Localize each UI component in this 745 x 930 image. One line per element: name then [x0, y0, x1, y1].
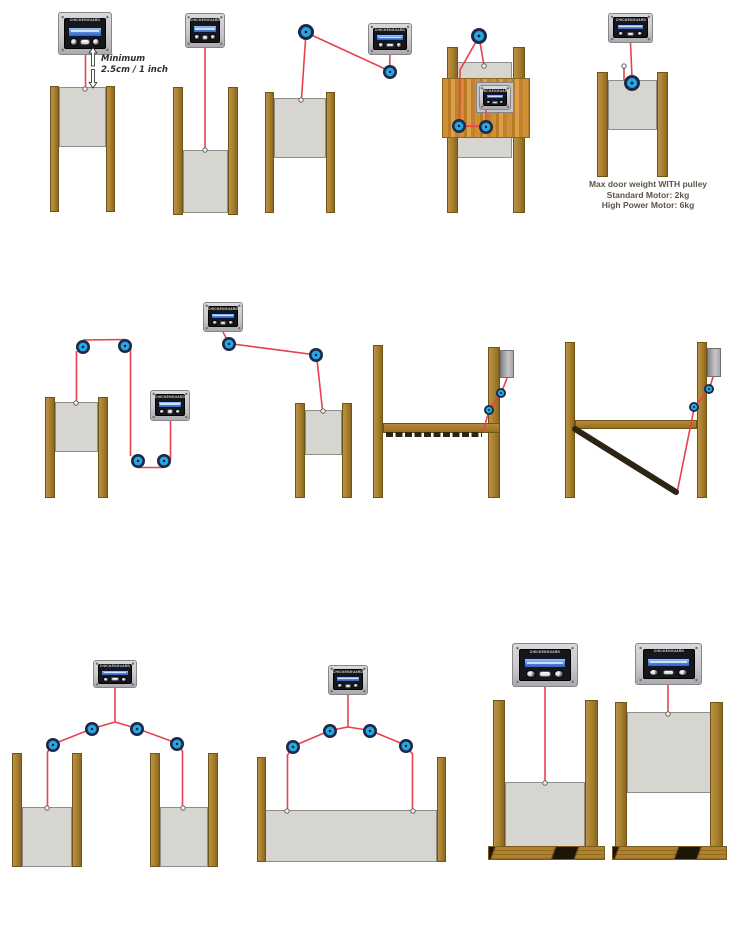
- device-face: CHICKENGUARD: [483, 89, 507, 106]
- device-face: CHICKENGUARD: [333, 669, 363, 690]
- left-knob-button: [649, 669, 659, 677]
- right-knob-button: [637, 31, 644, 36]
- d5-door-panel: [608, 80, 657, 130]
- center-button: [111, 677, 118, 681]
- d6-pulley-c-icon: [131, 454, 145, 468]
- d9-angled-door: [575, 429, 676, 492]
- d11-pulley-b-icon: [286, 740, 300, 754]
- d6-pulley-b-icon: [118, 339, 132, 353]
- device-buttons: [211, 320, 236, 326]
- right-knob-button: [678, 669, 688, 677]
- device-face: CHICKENGUARD: [208, 306, 238, 327]
- d6-left-post: [45, 397, 55, 498]
- d10-post-4: [208, 753, 218, 867]
- device-buttons: [336, 683, 361, 689]
- right-knob-button: [228, 320, 234, 325]
- d11-pulley-a-icon: [323, 724, 337, 738]
- left-knob-button: [194, 34, 200, 40]
- lcd-display: [193, 25, 217, 33]
- d2-right-post: [228, 87, 238, 215]
- d3-door-opener-unit: CHICKENGUARD: [368, 23, 412, 55]
- center-button: [386, 43, 393, 47]
- center-button: [167, 409, 174, 413]
- lcd-display: [617, 24, 645, 30]
- d10-right-door-panel: [160, 807, 208, 867]
- d1-right-post: [106, 86, 115, 212]
- d2-door-panel: [183, 150, 228, 213]
- d10-post-3: [150, 753, 160, 867]
- device-buttons: [485, 100, 504, 105]
- left-knob-button: [486, 100, 490, 104]
- brand-label: CHICKENGUARD: [333, 671, 363, 674]
- center-button: [80, 39, 89, 45]
- d13-right-post: [710, 702, 723, 850]
- d10-door-opener-unit: CHICKENGUARD: [93, 660, 137, 688]
- d11-wide-door-panel: [265, 810, 437, 862]
- d6-pulley-d-icon: [157, 454, 171, 468]
- d13-door-panel: [627, 712, 712, 793]
- d8-door-opener-unit-side: [500, 350, 514, 378]
- lcd-display: [336, 676, 360, 682]
- center-button: [220, 321, 227, 325]
- center-button: [345, 684, 352, 688]
- d9-cord: [677, 377, 713, 493]
- center-button: [539, 671, 551, 677]
- d6-door-opener-unit: CHICKENGUARD: [150, 390, 190, 421]
- left-knob-button: [378, 42, 384, 48]
- d10-pulley-d-icon: [170, 737, 184, 751]
- lcd-display: [101, 670, 128, 676]
- d2-left-post: [173, 87, 183, 215]
- d7-pulley-a-icon: [222, 337, 236, 351]
- max-door-weight-note: Max door weight WITH pulley Standard Mot…: [558, 179, 738, 211]
- d3-left-post: [265, 92, 274, 213]
- d4-top-pulley-icon: [471, 28, 487, 44]
- d11-left-post: [257, 757, 266, 862]
- lcd-display: [647, 658, 690, 668]
- d9-left-post: [565, 342, 575, 498]
- d12-right-post: [585, 700, 598, 850]
- device-face: CHICKENGUARD: [64, 18, 106, 49]
- d7-door-panel: [305, 410, 342, 455]
- center-button: [202, 35, 209, 40]
- d7-door-opener-unit: CHICKENGUARD: [203, 302, 243, 332]
- right-knob-button: [396, 42, 402, 48]
- d11-cord: [288, 695, 413, 810]
- lcd-display: [68, 27, 102, 37]
- device-buttons: [101, 676, 129, 682]
- d5-left-post: [597, 72, 608, 177]
- d6-door-panel: [55, 402, 98, 452]
- d7-left-post: [295, 403, 305, 498]
- d12-base-sill: [488, 846, 605, 860]
- brand-label: CHICKENGUARD: [100, 665, 130, 668]
- left-knob-button: [212, 320, 218, 325]
- d5-right-post: [657, 72, 668, 177]
- d9-top-rail: [575, 420, 697, 429]
- left-knob-button: [159, 409, 165, 414]
- right-knob-button: [92, 38, 100, 46]
- center-button: [627, 32, 635, 36]
- left-knob-button: [103, 677, 109, 682]
- lcd-display: [486, 94, 505, 99]
- d8-top-rail: [383, 423, 500, 433]
- d6-pulley-a-icon: [76, 340, 90, 354]
- d9-door-opener-unit-side: [707, 348, 721, 377]
- left-knob-button: [526, 670, 536, 678]
- minimum-clearance-line2: 2.5cm / 1 inch: [101, 65, 168, 76]
- d10-post-2: [72, 753, 82, 867]
- d11-right-post: [437, 757, 446, 862]
- installation-diagram-sheet: CHICKENGUARD CHICKENGUARD CHICKENGUARD: [0, 0, 745, 930]
- d10-pulley-b-icon: [46, 738, 60, 752]
- center-button: [663, 670, 675, 676]
- d8-left-post: [373, 345, 383, 498]
- weight-note-line3: High Power Motor: 6kg: [558, 200, 738, 211]
- brand-label: CHICKENGUARD: [155, 396, 185, 399]
- right-knob-button: [353, 683, 359, 688]
- device-face: CHICKENGUARD: [643, 649, 695, 679]
- minimum-clearance-note: Minimum 2.5cm / 1 inch: [101, 54, 168, 77]
- brand-label: CHICKENGUARD: [480, 90, 510, 93]
- left-knob-button: [70, 38, 78, 46]
- device-face: CHICKENGUARD: [373, 28, 407, 51]
- d3-lower-pulley-icon: [383, 65, 397, 79]
- device-face: CHICKENGUARD: [190, 18, 220, 43]
- brand-label: CHICKENGUARD: [70, 19, 100, 22]
- d12-left-post: [493, 700, 505, 850]
- center-button: [492, 101, 497, 104]
- d3-door-panel: [274, 98, 326, 158]
- d10-pulley-c-icon: [130, 722, 144, 736]
- d2-door-opener-unit: CHICKENGUARD: [185, 13, 225, 48]
- left-knob-button: [337, 683, 343, 688]
- d7-right-post: [342, 403, 352, 498]
- lcd-display: [376, 34, 403, 41]
- d5-door-opener-unit: CHICKENGUARD: [608, 13, 653, 43]
- d11-door-opener-unit: CHICKENGUARD: [328, 665, 368, 695]
- lcd-display: [211, 313, 235, 319]
- d12-door-opener-unit: CHICKENGUARD: [512, 643, 578, 687]
- right-knob-button: [121, 677, 127, 682]
- device-buttons: [376, 42, 404, 49]
- device-face: CHICKENGUARD: [613, 17, 647, 38]
- d10-left-door-panel: [22, 807, 72, 867]
- brand-label: CHICKENGUARD: [530, 651, 560, 654]
- device-buttons: [523, 669, 566, 679]
- right-knob-button: [554, 670, 564, 678]
- weight-note-line1: Max door weight WITH pulley: [558, 179, 738, 190]
- right-knob-button: [210, 34, 216, 40]
- d7-pulley-b-icon: [309, 348, 323, 362]
- left-knob-button: [618, 31, 625, 36]
- right-knob-button: [175, 409, 181, 414]
- right-knob-button: [499, 100, 503, 104]
- lcd-display: [524, 658, 566, 668]
- d13-left-post: [615, 702, 627, 850]
- d10-post-1: [12, 753, 22, 867]
- device-face: CHICKENGUARD: [98, 664, 132, 684]
- d1-door-opener-unit: CHICKENGUARD: [58, 12, 112, 55]
- d12-door-panel: [505, 782, 585, 847]
- weight-note-line2: Standard Motor: 2kg: [558, 190, 738, 201]
- down-arrow-icon: [89, 70, 97, 89]
- d13-base-sill: [612, 846, 727, 860]
- device-face: CHICKENGUARD: [519, 649, 570, 681]
- lcd-display: [158, 401, 182, 408]
- d3-right-post: [326, 92, 335, 213]
- brand-label: CHICKENGUARD: [615, 19, 645, 22]
- d5-attach-point: [622, 64, 626, 68]
- d10-cord: [48, 688, 183, 807]
- device-buttons: [68, 37, 103, 47]
- device-buttons: [193, 34, 218, 42]
- d13-door-opener-unit: CHICKENGUARD: [635, 643, 702, 685]
- d11-pulley-d-icon: [399, 739, 413, 753]
- d11-pulley-c-icon: [363, 724, 377, 738]
- brand-label: CHICKENGUARD: [190, 19, 220, 22]
- d6-right-post: [98, 397, 108, 498]
- d1-left-post: [50, 86, 59, 212]
- brand-label: CHICKENGUARD: [375, 29, 405, 32]
- d1-door-panel: [59, 87, 106, 147]
- brand-label: CHICKENGUARD: [208, 308, 238, 311]
- device-buttons: [616, 31, 645, 37]
- d9-right-post: [697, 342, 707, 498]
- d7-cord: [223, 332, 323, 410]
- brand-label: CHICKENGUARD: [653, 650, 683, 653]
- minimum-clearance-line1: Minimum: [101, 54, 168, 65]
- d3-top-pulley-icon: [298, 24, 314, 40]
- device-buttons: [647, 668, 691, 678]
- device-face: CHICKENGUARD: [155, 394, 185, 416]
- d4-door-opener-unit: CHICKENGUARD: [479, 85, 511, 110]
- device-buttons: [158, 408, 183, 415]
- d10-pulley-a-icon: [85, 722, 99, 736]
- d5-cord: [624, 43, 632, 80]
